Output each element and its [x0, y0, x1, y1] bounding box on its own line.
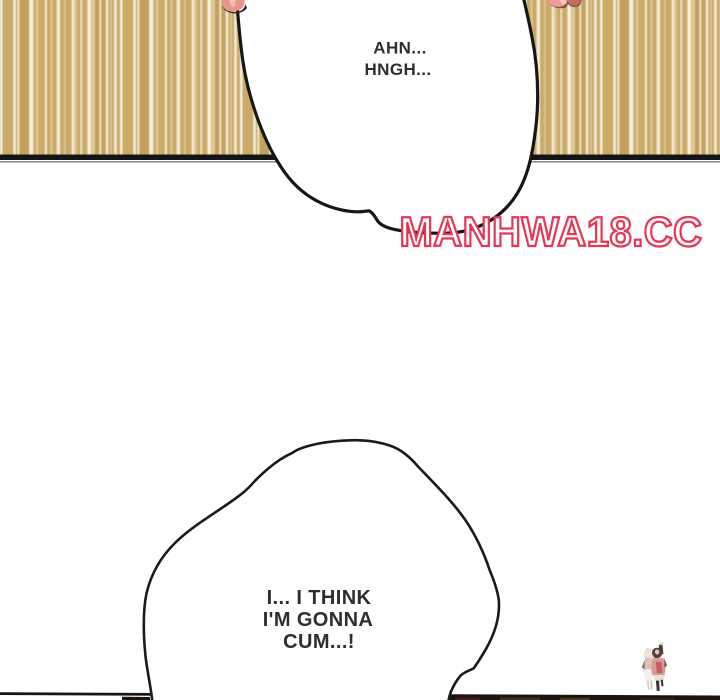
- svg-text:HNGH...: HNGH...: [364, 60, 431, 79]
- svg-text:AHN...: AHN...: [373, 39, 426, 58]
- svg-text:I'M GONNA: I'M GONNA: [263, 609, 374, 631]
- svg-text:CUM...!: CUM...!: [283, 631, 355, 653]
- svg-text:I... I THINK: I... I THINK: [267, 587, 372, 609]
- svg-text:MANHWA18.CC: MANHWA18.CC: [400, 208, 703, 255]
